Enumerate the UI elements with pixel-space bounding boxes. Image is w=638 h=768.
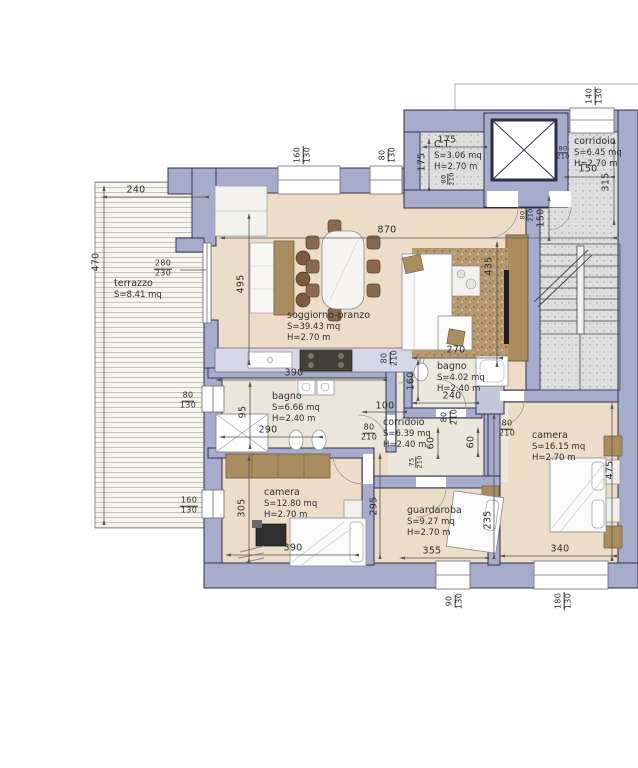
room-name: soggiorno-pranzo: [287, 310, 370, 322]
dim-305: 305: [237, 498, 248, 517]
dim-295: 295: [369, 496, 380, 515]
opening-height: 130: [565, 593, 574, 609]
dim-240: 240: [126, 185, 145, 196]
room-height: H=2.70 m: [287, 333, 370, 344]
dim-870: 870: [377, 225, 396, 236]
room-area: S=12.80 mq: [264, 499, 317, 510]
dim-390-bagno: 390: [284, 368, 303, 379]
elevator: [492, 120, 556, 180]
door-label-guardaroba: 75 210: [408, 455, 423, 468]
door-height: 210: [391, 350, 400, 366]
dim-160-bagno: 160: [406, 371, 417, 390]
room-name: bagno: [272, 391, 320, 403]
door-label-soggiorno: 80 210: [381, 350, 400, 366]
door-height: 210: [499, 430, 515, 439]
door-height: 210: [417, 455, 424, 468]
room-area: S=4.02 mq: [437, 373, 485, 384]
opening-height: 130: [304, 147, 313, 163]
room-height: H=2.70 m: [264, 510, 317, 521]
room-name: corridoio: [383, 417, 431, 429]
door-height: 210: [556, 154, 569, 161]
opening-height: 130: [180, 402, 196, 411]
kitchen-island: [250, 241, 310, 315]
dim-470: 470: [91, 252, 102, 271]
window-label-80x130-left: 80 130: [180, 392, 196, 411]
room-area: S=8.41 mq: [114, 290, 162, 301]
window-label-140x130: 140 130: [586, 87, 605, 105]
tv: [504, 270, 509, 344]
room-area: S=39.43 mq: [287, 322, 370, 333]
room-height: H=2.70 m: [407, 528, 462, 539]
room-name: terrazzo: [114, 278, 162, 290]
room-label-bagno1: bagno S=6.66 mq H=2.40 m: [272, 391, 320, 424]
opening-height: 130: [389, 147, 398, 163]
room-label-terrazzo: terrazzo S=8.41 mq: [114, 278, 162, 301]
room-label-soggiorno: soggiorno-pranzo S=39.43 mq H=2.70 m: [287, 310, 370, 343]
room-label-camera-est: camera S=16.15 mq H=2.70 m: [532, 430, 585, 463]
dim-270: 270: [446, 345, 465, 356]
room-label-guardaroba: guardaroba S=9.27 mq H=2.70 m: [407, 505, 462, 538]
window-label-160x130-left: 160 130: [180, 497, 198, 516]
door-label-scala: 80 210: [519, 208, 534, 221]
dim-435: 435: [484, 256, 495, 275]
dim-315: 315: [601, 172, 612, 191]
dim-175-larghezza: 175: [437, 135, 456, 146]
room-area: S=16.15 mq: [532, 442, 585, 453]
dim-390-camera: 390: [283, 543, 302, 554]
door-label-ingresso: 80 210: [556, 145, 569, 160]
room-height: H=2.40 m: [383, 440, 431, 451]
room-area: S=6.45 mq: [574, 148, 622, 159]
floor-plan: terrazzo S=8.41 mq C.T. S=3.06 mq H=2.70…: [0, 0, 638, 768]
room-name: camera: [532, 430, 585, 442]
room-label-bagno2: bagno S=4.02 mq H=2.40 m: [437, 361, 485, 394]
window-label-90x130-bottom: 90 130: [446, 593, 465, 609]
dim-95: 95: [238, 406, 249, 419]
dim-495: 495: [236, 274, 247, 293]
door-label-bagno1: 80 210: [361, 424, 377, 443]
room-name: corridoio: [574, 136, 622, 148]
opening-height: 130: [596, 88, 605, 104]
window-label-80x130-top: 80 130: [379, 147, 398, 163]
room-height: H=2.40 m: [272, 414, 320, 425]
dim-355: 355: [422, 546, 441, 557]
door-height: 210: [449, 172, 456, 185]
door-height: 210: [451, 409, 460, 425]
dim-475: 475: [605, 460, 616, 479]
dim-100: 100: [375, 401, 394, 412]
room-name: guardaroba: [407, 505, 462, 517]
dim-175-profondita: 175: [417, 152, 428, 171]
door-height: 210: [361, 434, 377, 443]
room-area: S=9.27 mq: [407, 517, 462, 528]
door-height: 210: [528, 208, 535, 221]
window-label-180x130-bottom: 180 130: [555, 592, 574, 610]
dim-240-bagno: 240: [442, 391, 461, 402]
window-label-280x230: 280 230: [154, 260, 172, 279]
dim-290: 290: [258, 425, 277, 436]
room-area: S=3.06 mq: [434, 151, 482, 162]
desk: [452, 266, 480, 296]
room-name: bagno: [437, 361, 485, 373]
opening-height: 230: [155, 270, 171, 279]
door-label-camera-est: 80 210: [499, 420, 515, 439]
room-area: S=6.66 mq: [272, 403, 320, 414]
door-label-bagno2: 80 210: [441, 409, 460, 425]
dim-150-corridoio: 150: [578, 164, 597, 175]
room-label-corridoio: corridoio S=6.39 mq H=2.40 m: [383, 417, 431, 450]
dim-150-scala: 150: [536, 208, 547, 227]
room-name: camera: [264, 487, 317, 499]
dim-235: 235: [483, 510, 494, 529]
room-label-camera-ovest: camera S=12.80 mq H=2.70 m: [264, 487, 317, 520]
floor-plan-drawing: [0, 0, 638, 768]
opening-height: 130: [456, 593, 465, 609]
dim-60-camera: 60: [466, 436, 477, 449]
dim-60-corridoio: 60: [426, 437, 437, 450]
window-label-160x130-top: 160 130: [294, 146, 313, 164]
door-label-ct: 80 210: [440, 172, 455, 185]
room-height: H=2.70 m: [532, 453, 585, 464]
room-area: S=6.39 mq: [383, 429, 431, 440]
dim-340: 340: [550, 544, 569, 555]
room-height: H=2.70 m: [434, 162, 482, 173]
opening-height: 130: [181, 507, 197, 516]
living-cabinets: [215, 186, 267, 236]
